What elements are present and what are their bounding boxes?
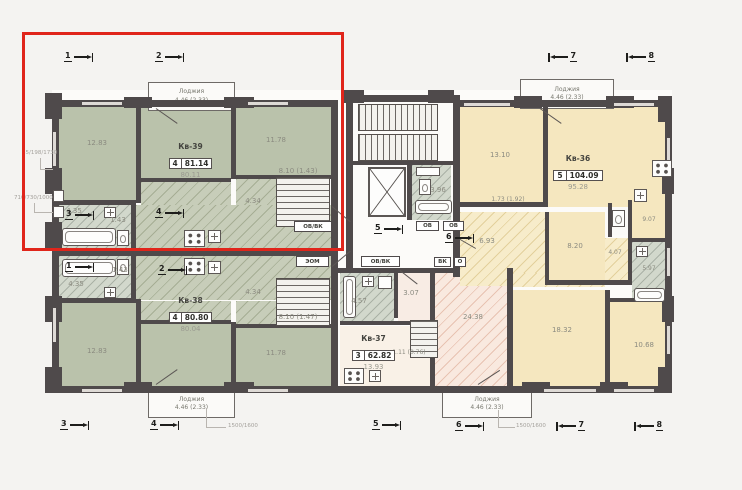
room-kv37-living xyxy=(435,273,507,386)
area-label: 24.38 xyxy=(455,313,491,321)
section-mark-4: 4 xyxy=(150,420,179,430)
room-kv39-kitchen xyxy=(141,182,231,205)
wall-pier xyxy=(658,367,672,393)
section-line xyxy=(384,228,397,230)
section-mark-2-inner: 2 xyxy=(158,265,187,275)
bathtub-icon xyxy=(415,200,452,214)
wall xyxy=(605,290,610,386)
section-bar xyxy=(183,53,185,62)
section-number: 4 xyxy=(150,420,158,430)
area-label: 4.57 xyxy=(344,297,374,305)
area-label: 5.97 xyxy=(634,265,664,272)
apartment-rooms: 5 xyxy=(554,171,566,180)
balcony-area: 4.46 (2.33) xyxy=(175,404,208,412)
toilet-icon xyxy=(612,210,625,227)
section-number: 5 xyxy=(374,224,382,234)
section-number: 1 xyxy=(65,262,73,272)
room-kv38-bed-left xyxy=(59,303,136,386)
area-label: 12.83 xyxy=(79,347,115,355)
wall xyxy=(453,95,460,277)
apartment-rooms: 4 xyxy=(170,313,182,322)
area-label: 4.34 xyxy=(238,197,268,205)
wall xyxy=(543,107,548,207)
window xyxy=(464,103,510,106)
wall-pier xyxy=(428,90,454,103)
wall-pier xyxy=(45,93,62,119)
area-label: 3.96 xyxy=(424,186,452,194)
area-label: 1.43 xyxy=(106,216,130,224)
apartment-total-area: 81.14 xyxy=(182,159,212,168)
leader-line xyxy=(498,410,499,428)
area-label: 4.07 xyxy=(600,249,630,256)
area-label: 12.83 xyxy=(79,139,115,147)
leader-line xyxy=(34,212,53,213)
section-line xyxy=(382,424,395,426)
section-mark-7-bottom: 7 xyxy=(556,421,585,431)
elevator-icon xyxy=(368,167,406,217)
stove-icon xyxy=(184,258,205,275)
area-label: 1.43 xyxy=(108,266,132,274)
wall xyxy=(59,298,136,303)
area-label: 18.32 xyxy=(544,326,580,334)
floor-plan: Лоджия 4.46 (2.33) Лоджия 4.46 (2.33) Ло… xyxy=(0,0,742,490)
apartment-card-kv36[interactable]: Кв-36 5104.09 95.28 xyxy=(550,154,606,191)
wall xyxy=(231,322,236,386)
sink-icon xyxy=(208,230,221,243)
balcony-label: Лоджия xyxy=(179,88,204,96)
shaft-label-ovvk: ОВ/ВК xyxy=(361,256,400,267)
section-line xyxy=(465,425,478,427)
balcony-label: Лоджия xyxy=(179,396,204,404)
apartment-area-box: 5104.09 xyxy=(553,170,602,181)
wall xyxy=(352,161,456,165)
room-kv38-bed-right xyxy=(236,328,331,386)
balcony-label: Лоджия xyxy=(474,396,499,404)
section-mark-8-bottom: 8 xyxy=(634,421,663,431)
area-label: 1.73 (1.92) xyxy=(486,196,530,203)
section-number: 6 xyxy=(455,421,463,431)
shaft-label-ov: ОВ xyxy=(443,221,464,231)
section-mark-3: 3 xyxy=(60,420,89,430)
section-line xyxy=(563,425,576,427)
shaft-label-eom: ЭОМ xyxy=(296,256,329,267)
area-label: 11.78 xyxy=(258,349,294,357)
balcony-kv37: Лоджия 4.46 (2.33) xyxy=(442,390,532,418)
window xyxy=(248,102,288,105)
area-label: 11.78 xyxy=(258,136,294,144)
area-label: 6.93 xyxy=(472,237,502,245)
dimension-note: 85/198/1730 xyxy=(22,150,57,156)
section-number: 7 xyxy=(570,52,578,62)
area-label: 9.07 xyxy=(634,216,664,223)
apartment-card-kv39[interactable]: Кв-39 481.14 80.11 xyxy=(163,142,218,179)
wall xyxy=(52,249,338,256)
area-label: 8.10 (1.47) xyxy=(268,313,328,321)
apartment-rooms: 4 xyxy=(170,159,182,168)
wall xyxy=(346,100,353,270)
balcony-kv38: Лоджия 4.46 (2.33) xyxy=(148,390,235,418)
apartment-area-box: 362.82 xyxy=(352,350,396,361)
toilet-icon xyxy=(117,230,129,246)
apartment-card-kv38[interactable]: Кв-38 480.80 80.04 xyxy=(163,296,218,333)
section-number: 3 xyxy=(60,420,68,430)
room-kv36-room4 xyxy=(513,290,605,386)
apartment-area-box: 480.80 xyxy=(169,312,213,323)
wall xyxy=(136,299,141,386)
balcony-label: Лоджия xyxy=(554,86,579,94)
sink-icon xyxy=(208,261,221,274)
room-kv39-bed-left xyxy=(59,107,136,200)
dimension-note: 1500/1600 xyxy=(228,423,258,429)
section-line xyxy=(165,56,178,58)
wall-pier xyxy=(45,222,62,248)
wall-pier xyxy=(658,96,672,122)
wall xyxy=(231,107,236,179)
section-line xyxy=(70,424,83,426)
window xyxy=(544,389,596,392)
section-mark-7: 7 xyxy=(548,52,577,62)
window xyxy=(614,103,654,106)
apartment-total-area: 62.82 xyxy=(365,351,395,360)
apartment-total-area: 80.80 xyxy=(182,313,212,322)
shaft-label-ovvk: ОВ/ВК xyxy=(294,221,332,232)
section-bar xyxy=(93,211,95,220)
section-mark-8: 8 xyxy=(626,52,655,62)
apartment-title: Кв-36 xyxy=(550,154,606,163)
section-number: 1 xyxy=(64,52,72,62)
section-number: 2 xyxy=(158,265,166,275)
wall-pier xyxy=(342,90,364,103)
apartment-area-box: 481.14 xyxy=(169,158,213,169)
area-label: 13.10 xyxy=(482,151,518,159)
section-line xyxy=(455,237,468,239)
area-label: 8.10 (1.43) xyxy=(268,167,328,175)
section-mark-1-inner: 1 xyxy=(65,262,94,272)
shaft-label-vk: ВК xyxy=(434,257,451,267)
leader-line xyxy=(206,408,207,428)
wall-pier xyxy=(606,96,634,108)
room-kv38-middle xyxy=(141,324,231,386)
section-line xyxy=(75,266,88,268)
bathtub-icon xyxy=(634,288,665,302)
apartment-title: Кв-38 xyxy=(163,296,218,305)
window xyxy=(53,308,56,342)
wall xyxy=(545,280,632,285)
window xyxy=(82,102,122,105)
apartment-sub-area: 13.93 xyxy=(346,363,401,371)
apartment-sub-area: 80.11 xyxy=(163,171,218,179)
staircase-kv39 xyxy=(276,177,330,227)
sink-icon xyxy=(362,276,374,287)
apartment-sub-area: 95.28 xyxy=(550,183,606,191)
bathtub-icon xyxy=(62,228,116,246)
section-mark-5-inner: 5 xyxy=(374,224,403,234)
counter-icon xyxy=(416,167,440,176)
section-number: 8 xyxy=(648,52,656,62)
cabinet-icon xyxy=(53,190,64,202)
section-mark-6-inner: 6 xyxy=(445,233,474,243)
section-line xyxy=(74,56,87,58)
wall xyxy=(507,268,513,386)
room-kv36-hall xyxy=(605,238,628,285)
section-bar xyxy=(88,421,90,430)
apartment-title: Кв-39 xyxy=(163,142,218,151)
section-line xyxy=(168,269,181,271)
window xyxy=(667,248,670,276)
wall xyxy=(331,100,338,393)
section-number: 6 xyxy=(445,233,453,243)
apartment-rooms: 3 xyxy=(353,351,365,360)
section-mark-3-inner: 3 xyxy=(65,210,94,220)
section-bar xyxy=(473,234,475,243)
apartment-sub-area: 80.04 xyxy=(163,325,218,333)
wall xyxy=(628,200,632,285)
area-label: 4.34 xyxy=(238,288,268,296)
shaft-label-o: О xyxy=(454,257,466,267)
section-number: 5 xyxy=(372,420,380,430)
section-line xyxy=(641,425,654,427)
wall xyxy=(628,238,666,242)
sink-icon xyxy=(636,246,648,257)
window xyxy=(667,326,670,354)
section-bar xyxy=(92,53,94,62)
section-line xyxy=(75,214,88,216)
apartment-title: Кв-37 xyxy=(346,334,401,343)
section-line xyxy=(160,424,173,426)
wall xyxy=(545,212,549,282)
area-label: 4.35 xyxy=(64,280,88,288)
washer-icon xyxy=(378,276,392,289)
section-bar xyxy=(183,209,185,218)
window xyxy=(82,389,122,392)
staircase-flight xyxy=(358,134,438,161)
leader-line xyxy=(40,169,53,170)
section-bar xyxy=(178,421,180,430)
window xyxy=(248,389,288,392)
section-mark-4-inner: 4 xyxy=(155,208,184,218)
leader-line xyxy=(498,427,515,428)
wall xyxy=(136,107,141,203)
section-bar xyxy=(93,263,95,272)
sink-icon xyxy=(369,370,381,382)
wall-pier xyxy=(45,367,62,393)
stove-icon xyxy=(652,160,672,177)
dimension-note: 710/730/1000 xyxy=(14,195,53,201)
section-bar xyxy=(483,422,485,431)
section-number: 4 xyxy=(155,208,163,218)
wall xyxy=(59,200,136,205)
section-line xyxy=(633,56,646,58)
section-bar xyxy=(400,421,402,430)
section-bar xyxy=(186,266,188,275)
wall xyxy=(407,165,412,220)
area-label: 8.20 xyxy=(560,242,590,250)
sink-icon xyxy=(104,287,116,298)
wall-pier xyxy=(514,96,542,108)
section-number: 3 xyxy=(65,210,73,220)
staircase-flight xyxy=(358,104,438,131)
section-mark-5: 5 xyxy=(372,420,401,430)
section-number: 8 xyxy=(656,421,664,431)
wall xyxy=(131,200,136,249)
dimension-note: 1500/1600 xyxy=(516,423,546,429)
section-bar xyxy=(402,225,404,234)
section-number: 7 xyxy=(578,421,586,431)
area-label: 10.68 xyxy=(626,341,662,349)
area-label: 3.07 xyxy=(396,289,426,297)
section-line xyxy=(165,212,178,214)
shaft-label-ov: ОВ xyxy=(416,221,439,231)
wall xyxy=(131,254,136,303)
section-mark-2: 2 xyxy=(155,52,184,62)
window xyxy=(53,132,56,166)
sink-icon xyxy=(634,189,647,202)
stove-icon xyxy=(184,230,205,247)
section-mark-1: 1 xyxy=(64,52,93,62)
section-line xyxy=(555,56,568,58)
apartment-card-kv37[interactable]: Кв-37 362.82 13.93 xyxy=(346,334,401,371)
section-number: 2 xyxy=(155,52,163,62)
apartment-total-area: 104.09 xyxy=(567,171,602,180)
window xyxy=(614,389,654,392)
leader-line xyxy=(206,427,226,428)
section-mark-6: 6 xyxy=(455,421,484,431)
